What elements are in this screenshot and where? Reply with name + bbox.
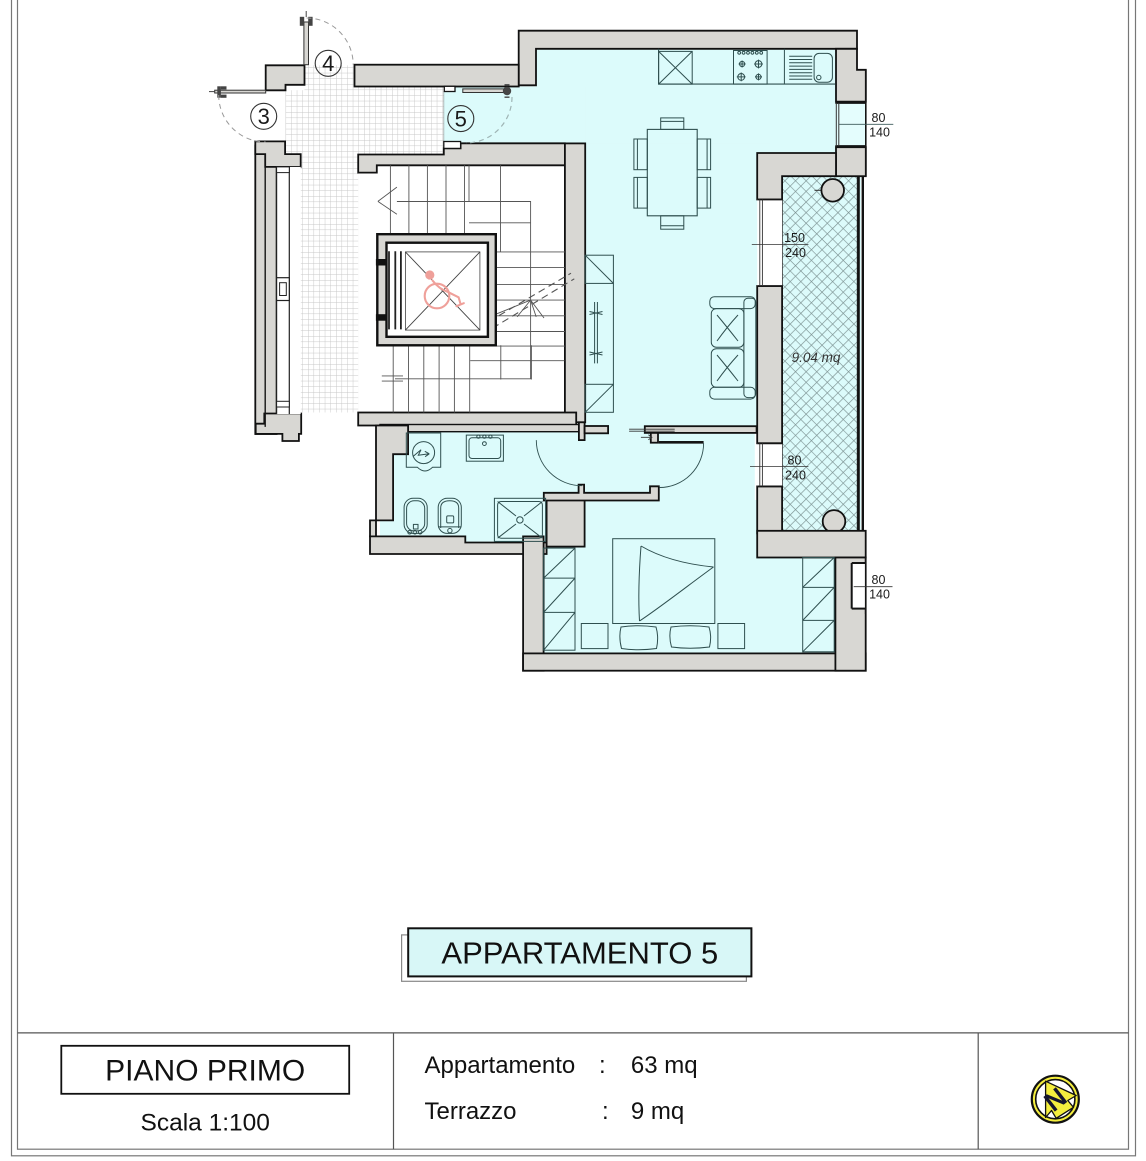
svg-text:150: 150 bbox=[784, 231, 805, 245]
svg-text:80: 80 bbox=[788, 453, 802, 467]
svg-text:80: 80 bbox=[872, 111, 886, 125]
svg-text:140: 140 bbox=[869, 588, 890, 602]
svg-text:240: 240 bbox=[785, 246, 806, 260]
svg-text:4: 4 bbox=[322, 51, 334, 76]
svg-text:Appartamento: Appartamento bbox=[425, 1052, 576, 1079]
svg-text::: : bbox=[599, 1052, 606, 1079]
svg-text:3: 3 bbox=[258, 104, 270, 129]
svg-text:Scala 1:100: Scala 1:100 bbox=[140, 1110, 269, 1137]
svg-text:240: 240 bbox=[785, 468, 806, 482]
svg-text:5: 5 bbox=[455, 106, 467, 131]
svg-text:80: 80 bbox=[872, 573, 886, 587]
svg-text:140: 140 bbox=[869, 126, 890, 140]
svg-text:APPARTAMENTO 5: APPARTAMENTO 5 bbox=[441, 936, 718, 971]
svg-text:9 mq: 9 mq bbox=[631, 1098, 684, 1125]
svg-text:63 mq: 63 mq bbox=[631, 1052, 698, 1079]
svg-text::: : bbox=[602, 1098, 609, 1125]
svg-text:9.04 mq: 9.04 mq bbox=[792, 350, 841, 365]
svg-text:Terrazzo: Terrazzo bbox=[425, 1098, 517, 1125]
svg-text:PIANO PRIMO: PIANO PRIMO bbox=[105, 1054, 305, 1087]
